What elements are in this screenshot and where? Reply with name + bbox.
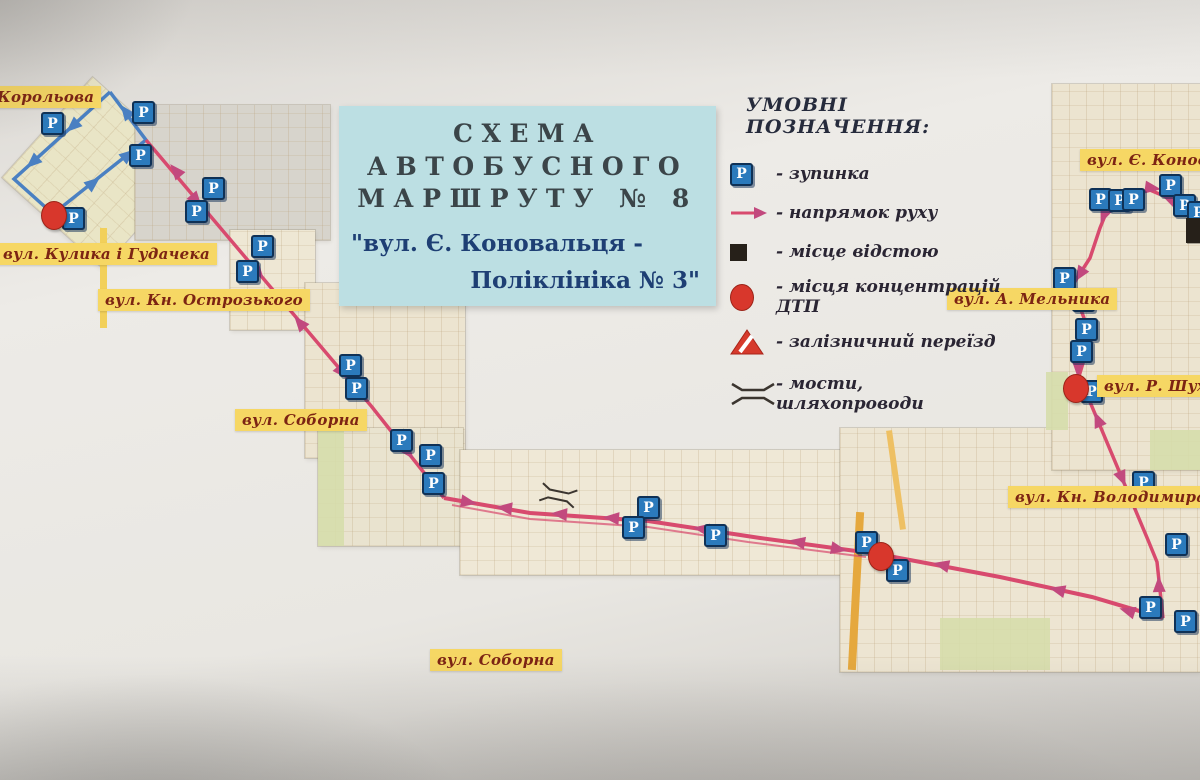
street-label: вул. Кн. Острозького bbox=[98, 289, 310, 311]
legend-title: УМОВНІ ПОЗНАЧЕННЯ: bbox=[746, 94, 1016, 138]
street-label: вул. Р. Шухевича bbox=[1097, 375, 1200, 397]
street-label: вул. Соборна bbox=[430, 649, 562, 671]
street-label: Корольова bbox=[0, 86, 101, 108]
legend-item-accident: - місця концентрацій ДТП bbox=[730, 277, 1016, 317]
railway-crossing-icon bbox=[730, 328, 776, 356]
legend-label: - мости, шляхопроводи bbox=[776, 374, 1016, 414]
map-title-line3: МАРШРУТУ № 8 bbox=[339, 183, 716, 216]
street-label: вул. Кулика і Гудачека bbox=[0, 243, 217, 265]
legend-item-bridge: - мости, шляхопроводи bbox=[730, 374, 1016, 414]
layover-square-icon bbox=[730, 244, 776, 261]
legend-label: - зупинка bbox=[776, 164, 870, 184]
route-endpoint-to: Поліклініка № 3" bbox=[339, 267, 700, 294]
legend-item-bus-stop: P - зупинка bbox=[730, 160, 1016, 188]
legend-panel: УМОВНІ ПОЗНАЧЕННЯ: P - зупинка - напрямо… bbox=[716, 94, 1016, 425]
legend-item-railway: - залізничний переїзд bbox=[730, 328, 1016, 356]
legend-label: - місце відстою bbox=[776, 242, 938, 262]
map-title-line2: АВТОБУСНОГО bbox=[339, 151, 716, 184]
legend-label: - місця концентрацій ДТП bbox=[776, 277, 1016, 317]
legend-item-layover: - місце відстою bbox=[730, 238, 1016, 266]
legend-label: - залізничний переїзд bbox=[776, 332, 996, 352]
map-title-line1: СХЕМА bbox=[339, 118, 716, 151]
scanned-bus-route-map: PPPPPPPPPPPPPPPPPPPPPPPPPPPPPPPPP Король… bbox=[0, 0, 1200, 780]
street-label: вул. Кн. Володимира bbox=[1008, 486, 1200, 508]
route-endpoint-from: "вул. Є. Коновальця - bbox=[351, 230, 716, 257]
accident-circle-icon bbox=[730, 284, 776, 311]
street-label: вул. Є. Коновальця bbox=[1080, 149, 1200, 171]
street-label: вул. Соборна bbox=[235, 409, 367, 431]
bus-stop-icon: P bbox=[730, 163, 776, 186]
direction-arrow-icon bbox=[730, 206, 776, 220]
legend-item-direction: - напрямок руху bbox=[730, 199, 1016, 227]
legend-label: - напрямок руху bbox=[776, 203, 937, 223]
title-box: СХЕМА АВТОБУСНОГО МАРШРУТУ № 8 "вул. Є. … bbox=[339, 106, 716, 306]
bridge-icon bbox=[730, 381, 776, 407]
